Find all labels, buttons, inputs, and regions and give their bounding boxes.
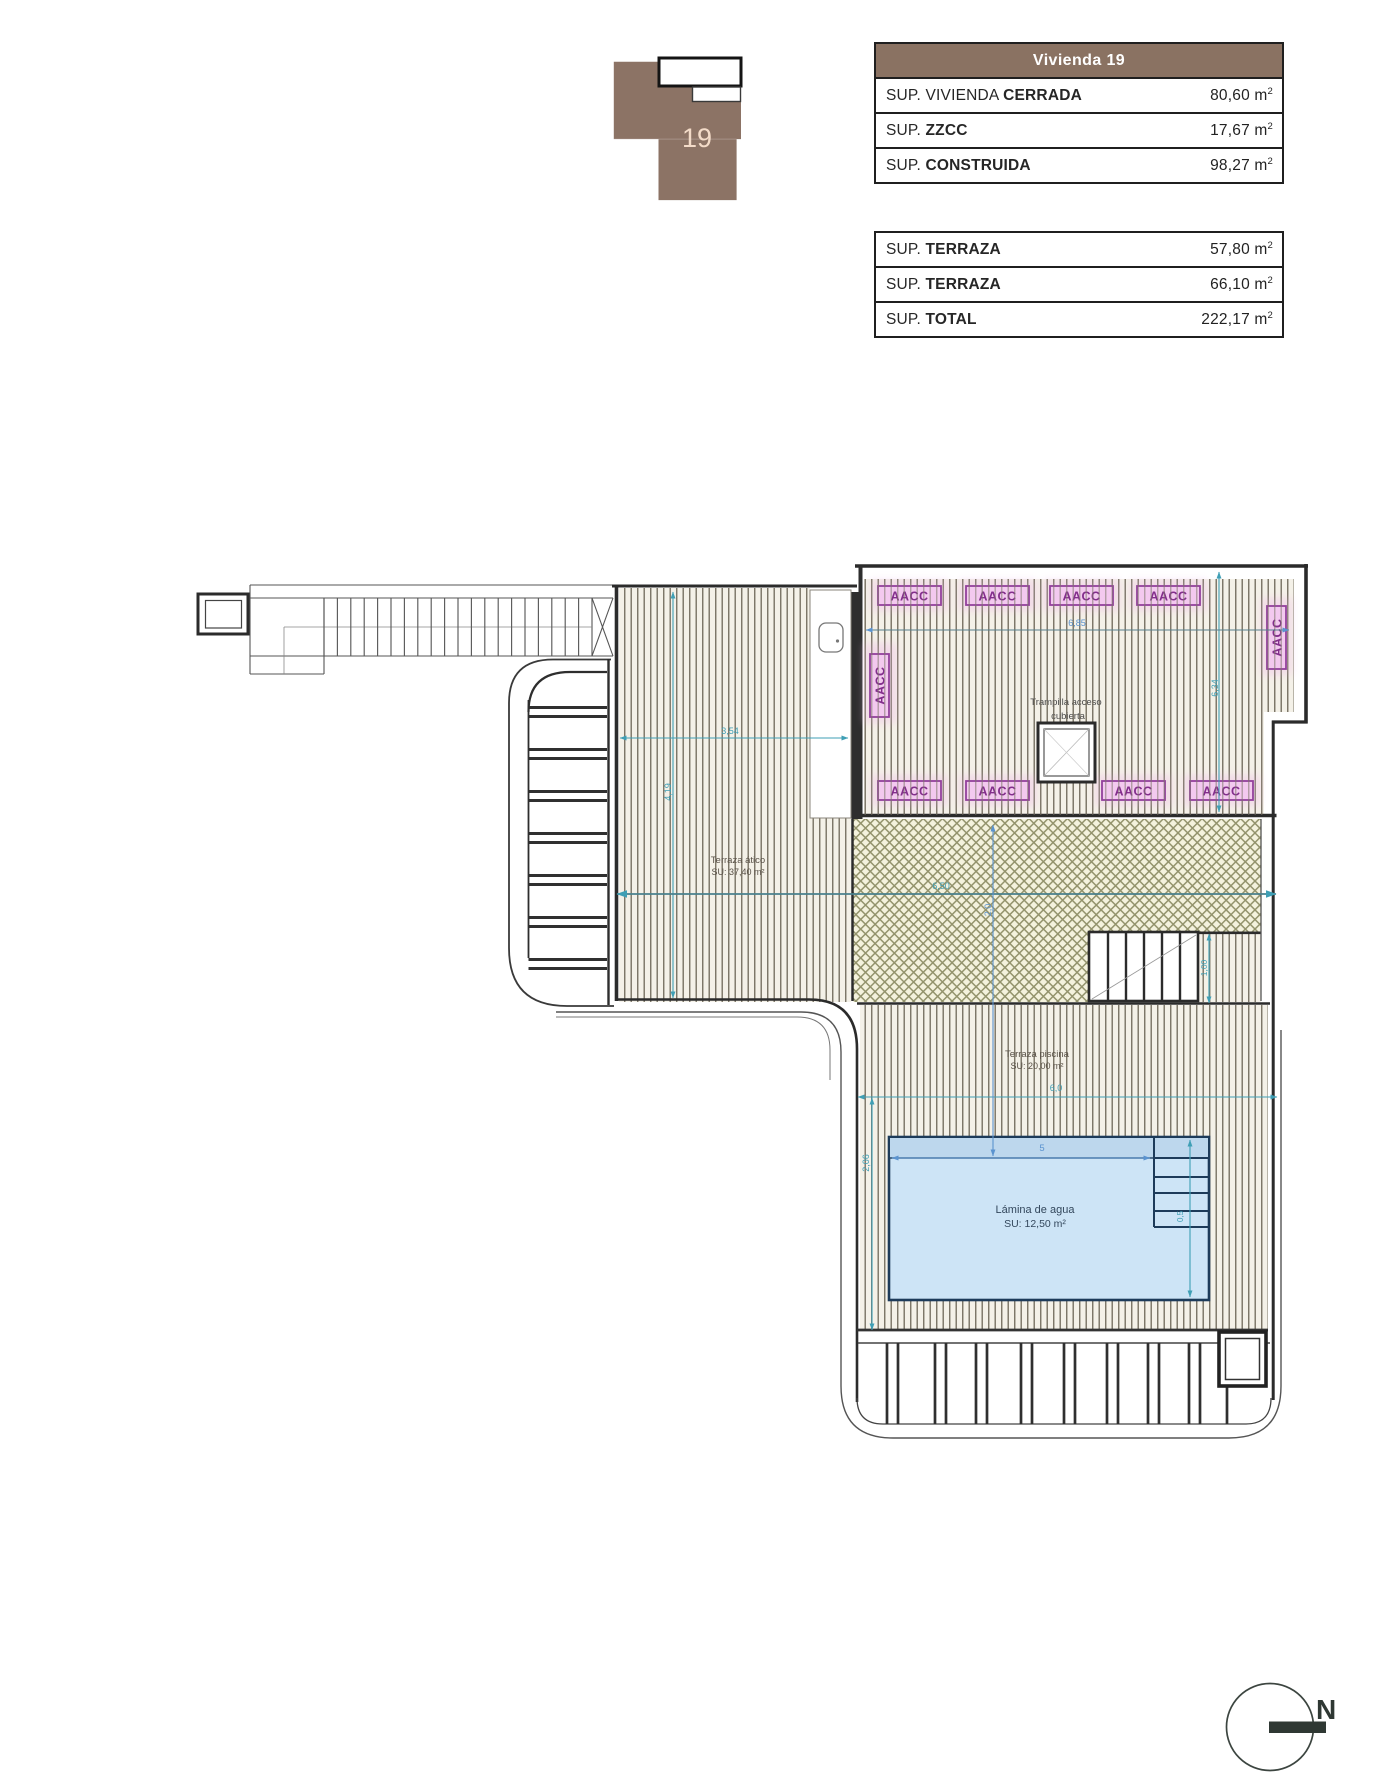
- svg-text:1,00: 1,00: [1199, 959, 1209, 976]
- svg-text:2,0: 2,0: [983, 904, 993, 917]
- svg-text:N: N: [1316, 1694, 1336, 1725]
- svg-text:6,34: 6,34: [1210, 679, 1220, 697]
- svg-text:3,54: 3,54: [721, 726, 739, 736]
- svg-text:SU: 37,40 m²: SU: 37,40 m²: [711, 867, 764, 877]
- svg-text:6,50: 6,50: [932, 881, 950, 891]
- svg-text:4,19: 4,19: [663, 783, 673, 801]
- svg-text:6,85: 6,85: [1068, 618, 1086, 628]
- svg-text:2,06: 2,06: [861, 1154, 871, 1172]
- svg-text:5: 5: [1039, 1143, 1044, 1154]
- svg-text:0,5: 0,5: [1176, 1210, 1185, 1222]
- svg-text:6,0: 6,0: [1050, 1083, 1063, 1093]
- svg-text:Lámina de agua: Lámina de agua: [996, 1204, 1076, 1216]
- svg-text:Terraza piscina: Terraza piscina: [1005, 1049, 1070, 1060]
- svg-text:Terraza ático: Terraza ático: [711, 855, 765, 866]
- svg-text:SU: 20,00 m²: SU: 20,00 m²: [1010, 1061, 1063, 1071]
- svg-text:SU: 12,50 m²: SU: 12,50 m²: [1004, 1218, 1066, 1230]
- svg-text:19: 19: [682, 123, 712, 153]
